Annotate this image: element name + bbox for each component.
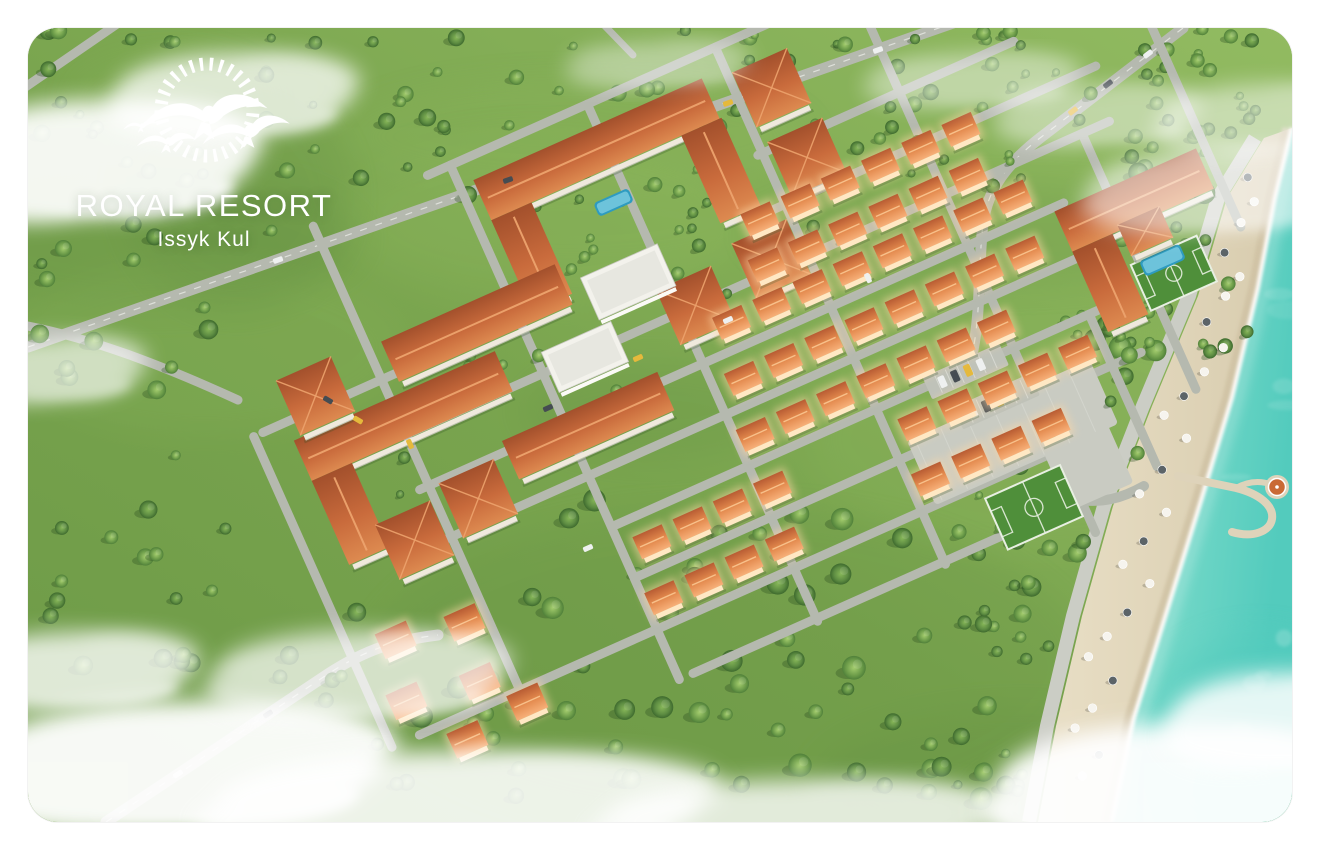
umbrella-icon: [1103, 632, 1112, 641]
tree: [170, 592, 183, 605]
tree: [432, 67, 442, 77]
tree: [1141, 68, 1153, 80]
tree: [771, 723, 786, 738]
tree: [554, 86, 564, 96]
tree: [165, 360, 178, 373]
tree: [206, 585, 218, 597]
tree: [149, 547, 163, 561]
tree: [1042, 540, 1058, 556]
umbrella-icon: [1119, 560, 1128, 569]
umbrella-icon: [1123, 608, 1132, 617]
tree: [1076, 534, 1091, 549]
tree: [569, 42, 578, 51]
umbrella-icon: [1219, 343, 1228, 352]
tree: [847, 762, 866, 781]
seagull-icon: [124, 120, 158, 132]
tree: [1190, 53, 1204, 67]
logo-title: ROYAL RESORT: [54, 188, 354, 224]
tree: [608, 739, 623, 754]
tree: [523, 588, 541, 606]
tree: [841, 682, 854, 695]
umbrella-icon: [1180, 392, 1189, 401]
logo-subtitle: Issyk Kul: [54, 228, 354, 252]
umbrella-icon: [1109, 676, 1118, 685]
tree: [39, 271, 55, 287]
umbrella-icon: [1084, 652, 1093, 661]
umbrella-icon: [1160, 411, 1169, 420]
tree: [831, 508, 853, 530]
umbrella-icon: [1158, 465, 1167, 474]
tree: [647, 177, 662, 192]
tree: [953, 728, 970, 745]
tree: [171, 450, 181, 460]
tree: [730, 674, 749, 693]
tree: [979, 605, 990, 616]
tree: [504, 120, 514, 130]
tree: [126, 253, 140, 267]
tree: [267, 34, 276, 43]
tree: [651, 696, 673, 718]
sun-seagulls-logo-icon: [109, 44, 299, 196]
tree: [837, 37, 853, 53]
tree: [43, 608, 59, 624]
tree: [1015, 631, 1026, 642]
tree: [977, 696, 996, 715]
tree: [139, 500, 157, 518]
tree: [910, 34, 920, 44]
tree: [830, 563, 851, 584]
umbrella-icon: [1200, 368, 1209, 377]
tree: [1001, 749, 1010, 758]
umbrella-icon: [1236, 272, 1245, 281]
umbrella-icon: [1088, 704, 1097, 713]
umbrella-icon: [1162, 508, 1171, 517]
tree: [437, 120, 450, 133]
tree: [720, 708, 732, 720]
umbrella-icon: [1146, 579, 1155, 588]
tree: [787, 651, 805, 669]
tree: [932, 757, 952, 777]
tree: [892, 528, 912, 548]
tree: [147, 380, 166, 399]
tree: [1020, 653, 1032, 665]
tree: [347, 603, 366, 622]
tree: [884, 713, 901, 730]
tree: [403, 162, 413, 172]
umbrella-icon: [1182, 434, 1191, 443]
tree: [1043, 640, 1055, 652]
umbrella-icon: [1071, 724, 1080, 733]
resort-logo: ROYAL RESORT Issyk Kul: [54, 44, 354, 252]
umbrella-icon: [1221, 292, 1230, 301]
tree: [916, 628, 932, 644]
tree: [559, 508, 579, 528]
tree: [448, 29, 465, 46]
tree: [219, 523, 231, 535]
tree: [1203, 63, 1217, 77]
tree: [557, 701, 576, 720]
tree: [1014, 605, 1032, 623]
tree: [367, 36, 378, 47]
tree: [991, 646, 1002, 657]
tree: [975, 615, 992, 632]
tree: [842, 656, 866, 680]
tree: [418, 109, 436, 127]
resort-aerial-render: ROYAL RESORT Issyk Kul: [28, 28, 1292, 822]
umbrella-icon: [1139, 537, 1148, 546]
tree: [1152, 75, 1164, 87]
tree: [1147, 141, 1159, 153]
tree: [353, 170, 369, 186]
page: { "logo": { "title": "ROYAL RESORT", "su…: [0, 0, 1320, 850]
tree: [199, 320, 219, 340]
tree: [788, 754, 811, 777]
tree: [974, 763, 993, 782]
tree: [509, 70, 524, 85]
tree: [1224, 29, 1238, 43]
tree: [1245, 33, 1259, 47]
tree: [104, 530, 118, 544]
tree: [435, 146, 446, 157]
tree: [378, 113, 395, 130]
tree: [1021, 575, 1036, 590]
tree: [958, 615, 972, 629]
tree: [924, 737, 938, 751]
tree: [689, 702, 710, 723]
umbrella-icon: [1135, 490, 1144, 499]
tree: [850, 141, 864, 155]
tree: [808, 704, 823, 719]
tree: [55, 521, 69, 535]
tree: [36, 258, 47, 269]
tree: [395, 96, 406, 107]
tree: [614, 699, 635, 720]
umbrella-icon: [1202, 318, 1211, 327]
tree: [198, 302, 210, 314]
tree: [49, 592, 65, 608]
tree: [55, 574, 68, 587]
tree: [542, 597, 564, 619]
umbrella-icon: [1220, 248, 1229, 257]
